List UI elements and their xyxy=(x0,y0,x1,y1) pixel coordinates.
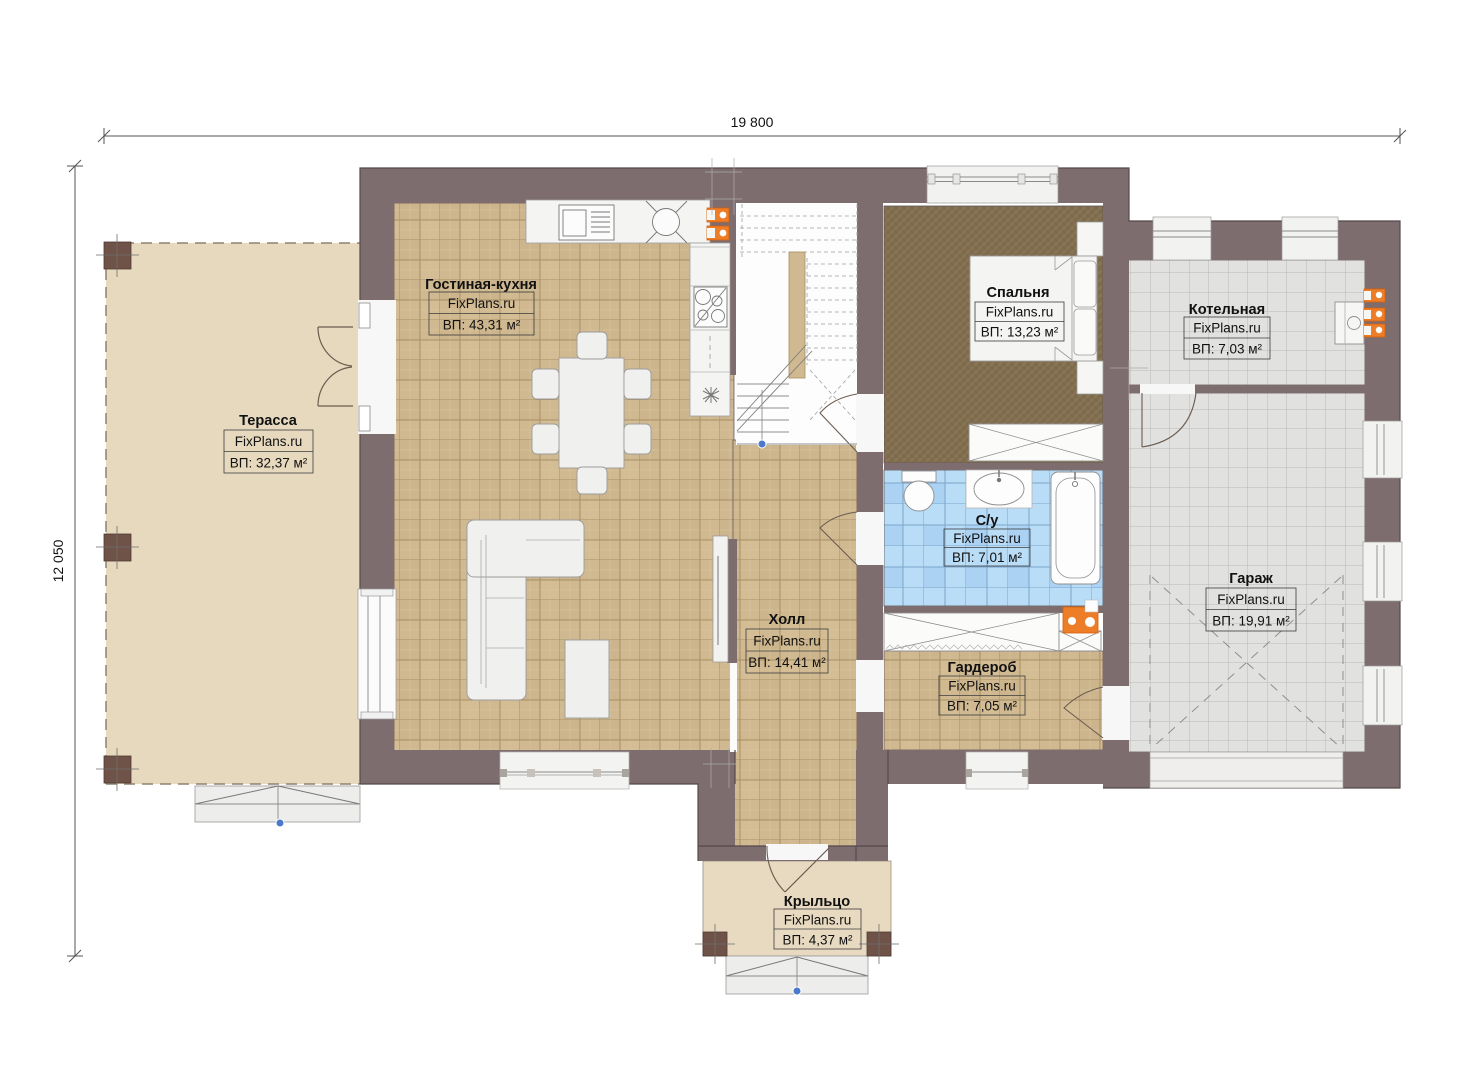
svg-text:ВП: 32,37 м²: ВП: 32,37 м² xyxy=(230,456,308,471)
svg-text:FixPlans.ru: FixPlans.ru xyxy=(948,679,1016,694)
svg-text:FixPlans.ru: FixPlans.ru xyxy=(784,913,852,928)
svg-text:ВП: 19,91 м²: ВП: 19,91 м² xyxy=(1212,614,1290,629)
svg-text:FixPlans.ru: FixPlans.ru xyxy=(448,296,516,311)
svg-text:Крыльцо: Крыльцо xyxy=(784,894,850,910)
svg-text:FixPlans.ru: FixPlans.ru xyxy=(235,434,303,449)
svg-text:ВП: 43,31 м²: ВП: 43,31 м² xyxy=(443,318,521,333)
svg-text:Гараж: Гараж xyxy=(1229,571,1273,587)
svg-text:С/у: С/у xyxy=(976,513,1000,529)
svg-text:12 050: 12 050 xyxy=(50,539,66,582)
svg-text:FixPlans.ru: FixPlans.ru xyxy=(753,634,821,649)
svg-text:Холл: Холл xyxy=(769,612,806,628)
svg-text:ВП: 7,05 м²: ВП: 7,05 м² xyxy=(947,699,1018,714)
svg-text:Гостиная-кухня: Гостиная-кухня xyxy=(425,277,537,293)
svg-text:ВП: 13,23 м²: ВП: 13,23 м² xyxy=(981,325,1059,340)
svg-text:Терасса: Терасса xyxy=(239,413,298,429)
svg-text:ВП: 7,03 м²: ВП: 7,03 м² xyxy=(1192,342,1263,357)
svg-text:FixPlans.ru: FixPlans.ru xyxy=(1193,321,1261,336)
svg-text:ВП: 4,37 м²: ВП: 4,37 м² xyxy=(782,933,853,948)
svg-text:FixPlans.ru: FixPlans.ru xyxy=(986,305,1054,320)
svg-text:Гардероб: Гардероб xyxy=(948,660,1017,676)
svg-text:19 800: 19 800 xyxy=(731,114,774,130)
svg-text:Спальня: Спальня xyxy=(986,285,1049,301)
svg-text:FixPlans.ru: FixPlans.ru xyxy=(1217,592,1285,607)
svg-text:FixPlans.ru: FixPlans.ru xyxy=(953,531,1021,546)
svg-text:ВП: 7,01 м²: ВП: 7,01 м² xyxy=(952,550,1023,565)
svg-text:Котельная: Котельная xyxy=(1189,302,1265,318)
svg-text:ВП: 14,41 м²: ВП: 14,41 м² xyxy=(748,655,826,670)
